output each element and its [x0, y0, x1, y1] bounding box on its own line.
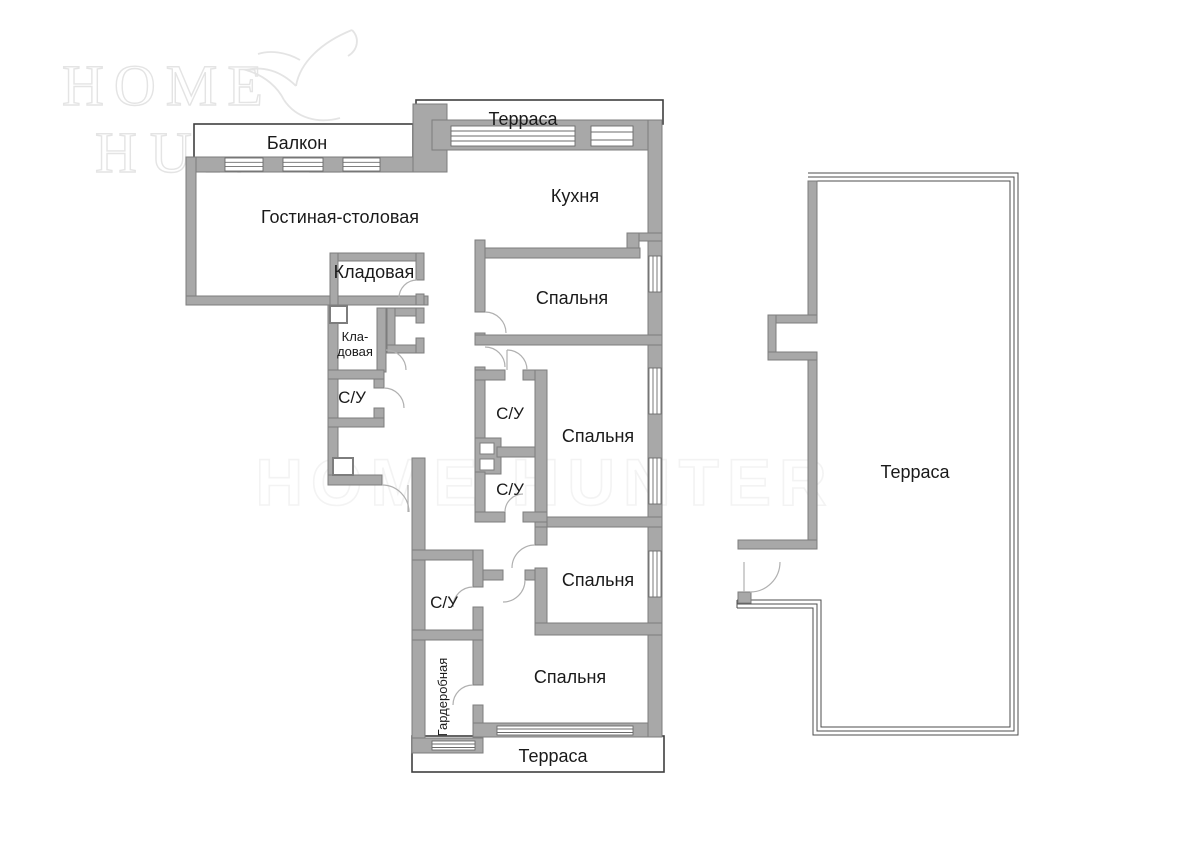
room-label-storage2-line1: Кла- — [342, 329, 369, 344]
window — [225, 158, 263, 171]
room-label-wc3: С/У — [496, 480, 524, 499]
wall-segment — [738, 540, 817, 549]
wc2-door-arc — [507, 350, 527, 370]
floor-plan-page: HOME HUNTER HOME HUNTER — [0, 0, 1200, 848]
bedroom4-door-arc — [503, 580, 525, 602]
room-label-wc2: С/У — [496, 404, 524, 423]
room-label-wc4: С/У — [430, 593, 458, 612]
duct-box — [480, 443, 494, 454]
wall-segment — [648, 120, 662, 737]
room-label-living: Гостиная-столовая — [261, 207, 419, 227]
window — [432, 741, 475, 750]
wall-segment — [374, 379, 384, 388]
wall-segment — [330, 253, 424, 261]
wall-segment — [377, 308, 386, 372]
room-label-bedroom3: Спальня — [562, 570, 634, 590]
wall-segment — [186, 157, 196, 305]
wall-segment — [475, 335, 662, 345]
room-labels: Балкон Терраса Кухня Гостиная-столовая К… — [261, 109, 951, 766]
room-label-wardrobe: Гардеробная — [435, 658, 450, 737]
french-window — [497, 726, 633, 735]
room-label-storage2-line2: довая — [337, 344, 373, 359]
window — [343, 158, 380, 171]
watermark-logo-line1: HOME — [62, 53, 273, 118]
bedroom1-door-arc — [485, 312, 506, 333]
floor-plan-svg: HOME HUNTER HOME HUNTER — [0, 0, 1200, 848]
wall-segment — [475, 512, 505, 522]
wall-segment — [412, 458, 425, 753]
wall-segment — [412, 630, 483, 640]
room-label-wc1: С/У — [338, 388, 366, 407]
room-label-bedroom1: Спальня — [536, 288, 608, 308]
wall-segment — [416, 308, 424, 323]
window — [283, 158, 323, 171]
window — [649, 458, 661, 504]
wall-segment — [416, 253, 424, 280]
bedroom2-door-arc — [485, 347, 505, 367]
wc1-door-arc — [384, 388, 404, 408]
wall-segment — [523, 512, 547, 522]
room-label-bedroom4: Спальня — [534, 667, 606, 687]
wall-segment — [535, 623, 662, 635]
wall-segment — [416, 294, 424, 305]
wall-segment — [475, 240, 485, 312]
window — [649, 256, 661, 292]
wall-segment — [473, 550, 483, 587]
room-label-storage1: Кладовая — [334, 262, 415, 282]
wall-segment — [768, 352, 817, 360]
wall-segment — [473, 640, 483, 685]
duct-box — [480, 459, 494, 470]
window — [591, 126, 633, 146]
storage1-door-arc — [399, 280, 417, 298]
wall-segment — [475, 248, 640, 258]
wall-segment — [547, 517, 662, 527]
wall-segment — [535, 527, 547, 545]
wall-segment — [328, 418, 384, 427]
wall-segment — [525, 570, 535, 580]
room-label-terrace-top: Терраса — [488, 109, 558, 129]
room-label-terrace-bottom: Терраса — [518, 746, 588, 766]
wall-segment — [535, 370, 547, 527]
wall-segment — [738, 592, 751, 603]
wall-segment — [808, 181, 817, 315]
room-label-balcony: Балкон — [267, 133, 327, 153]
wall-segment — [483, 570, 503, 580]
window — [649, 368, 661, 414]
wall-segment — [416, 338, 424, 353]
wall-segment — [475, 370, 505, 380]
wall-segment — [475, 380, 485, 438]
duct-box — [333, 458, 353, 475]
terrace-door-arc — [750, 562, 780, 592]
room-label-bedroom2: Спальня — [562, 426, 634, 446]
wardrobe-door-arc — [453, 685, 473, 705]
duct-box — [330, 306, 347, 323]
french-window — [451, 126, 575, 146]
wall-segment — [808, 360, 817, 540]
wall-segment — [328, 475, 382, 485]
bedroom3-door-arc — [512, 545, 535, 568]
window — [649, 551, 661, 597]
room-label-kitchen: Кухня — [551, 186, 599, 206]
wall-segment — [186, 296, 428, 305]
wall-segment — [412, 550, 483, 560]
wall-segment — [328, 370, 384, 379]
room-label-terrace-right: Терраса — [880, 462, 950, 482]
